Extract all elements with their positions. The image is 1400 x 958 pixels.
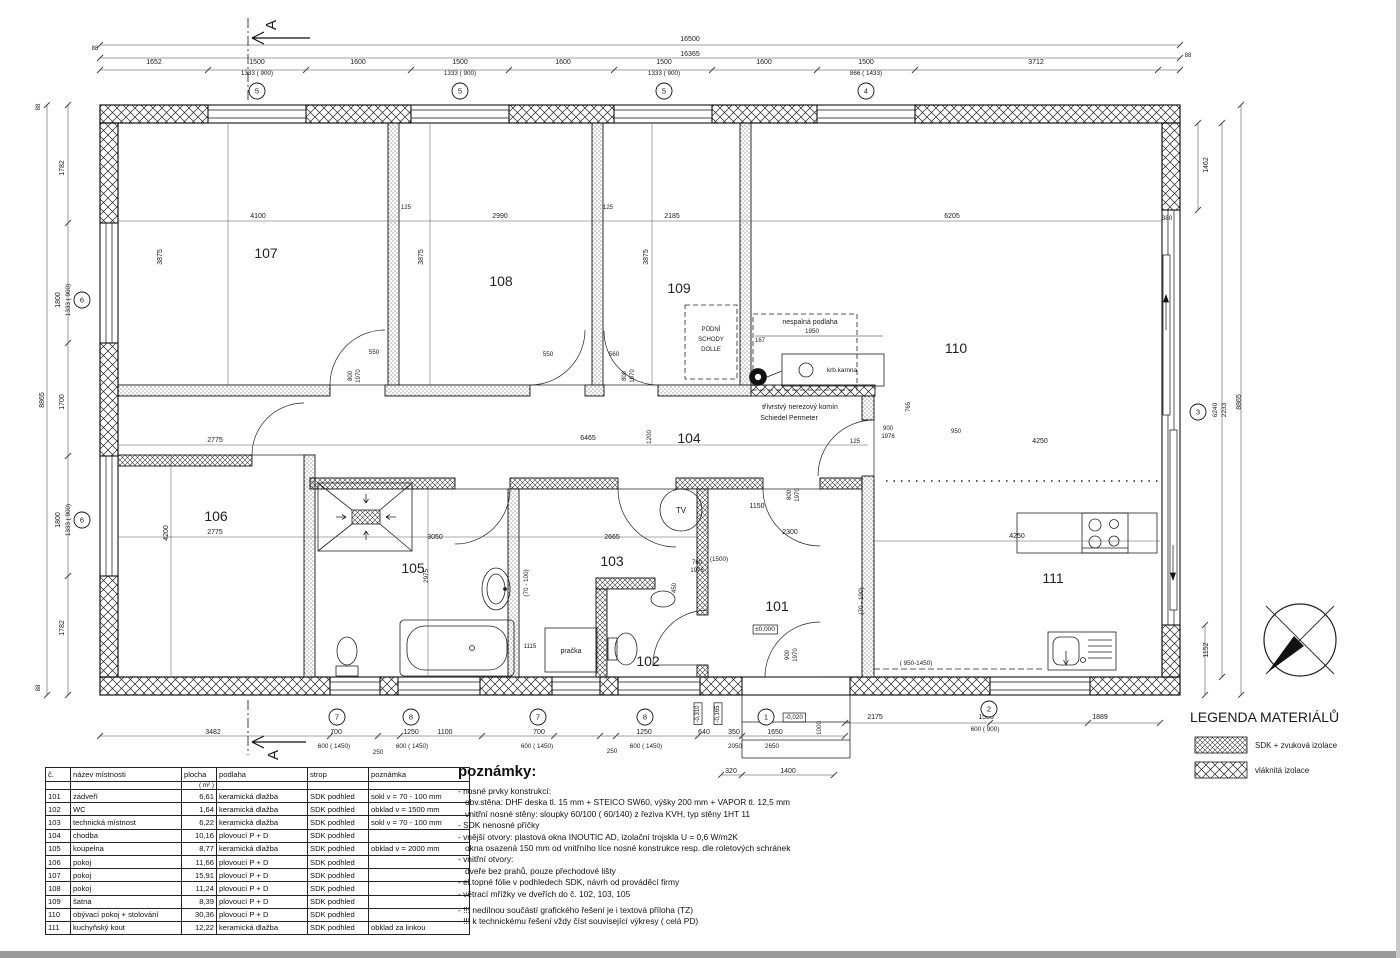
fireplace-stove <box>767 354 884 386</box>
dim-label: 1782 <box>59 160 66 176</box>
table-cell: 111 <box>46 921 71 934</box>
dim-label: 4250 <box>1032 438 1048 445</box>
room-label-109: 109 <box>667 280 691 296</box>
legend-swatch-sdk <box>1195 737 1247 753</box>
position-bubbles: 5554663787812 <box>74 83 1206 725</box>
dim-label: 2300 <box>782 529 798 536</box>
dim-label: -0,165 <box>715 705 721 723</box>
dim-label: (70 - 100) <box>523 569 530 596</box>
position-bubble-number: 6 <box>80 516 84 525</box>
dim-label: DOLLE <box>701 347 721 353</box>
dim-label: 450 <box>672 582 678 593</box>
note-line: obv.stěna: DHF deska tl. 15 mm + STEICO … <box>458 797 928 808</box>
table-row: 108pokoj11,24plovoucí P + DSDK podhled <box>46 882 470 895</box>
dim-label: 88 <box>92 46 99 52</box>
dim-label: 1600 <box>756 59 772 66</box>
dim-label: 2650 <box>765 743 780 750</box>
dim-label: 800 <box>348 370 354 381</box>
dim-label: 1700 <box>59 394 66 410</box>
table-unit-cell: ( m² ) <box>182 782 217 790</box>
notes-heading: poznámky: <box>458 763 928 780</box>
room-label-105: 105 <box>401 560 425 576</box>
dim-label: 1970 <box>630 369 636 383</box>
dim-label: 125 <box>850 439 861 445</box>
position-bubble-number: 2 <box>987 705 991 714</box>
dim-label: 4250 <box>1009 533 1025 540</box>
table-cell: 30,36 <box>182 908 217 921</box>
position-bubble-number: 8 <box>643 713 647 722</box>
dim-label: 1800 <box>55 292 62 308</box>
note-line: - nosné prvky konstrukcí: <box>458 786 928 797</box>
interior-walls <box>118 123 875 677</box>
dim-label: 125 <box>401 205 412 211</box>
legend: LEGENDA MATERIÁLŮ SDK + zvuková izolace … <box>1190 708 1339 778</box>
washbasin <box>482 568 510 610</box>
dim-label: 600 ( 1450) <box>630 743 662 750</box>
kitchen-sink <box>1048 632 1116 670</box>
dim-label: 3482 <box>205 729 221 736</box>
position-bubble-number: 7 <box>335 713 339 722</box>
dim-label: krb.kamna <box>827 367 858 374</box>
table-unit-cell <box>71 782 182 790</box>
svg-text:A: A <box>265 750 282 760</box>
dim-label: 1333 ( 900) <box>241 70 273 77</box>
dim-label: 1200 <box>646 430 653 445</box>
dim-label: 900 <box>785 649 791 660</box>
table-row: 105koupelna8,77keramická dlažbaSDK podhl… <box>46 842 470 855</box>
dim-label: 765 <box>906 401 912 412</box>
toilet-105 <box>336 637 358 676</box>
position-bubble-number: 7 <box>536 713 540 722</box>
dim-label: 1115 <box>524 644 537 650</box>
dim-label: SCHODY <box>698 337 724 343</box>
dim-label: 1650 <box>767 729 783 736</box>
table-header: název místnosti <box>71 768 182 782</box>
table-cell: 101 <box>46 790 71 803</box>
table-cell: pokoj <box>71 869 182 882</box>
dim-label: 3875 <box>643 249 650 265</box>
windows <box>106 110 1177 690</box>
table-cell <box>369 869 470 882</box>
position-bubble-number: 6 <box>80 296 84 305</box>
table-row: 106pokoj11,66plovoucí P + DSDK podhled <box>46 855 470 868</box>
note-line: dveře bez prahů, pouze přechodové lišty <box>458 866 928 877</box>
dim-label: 2175 <box>867 714 883 721</box>
table-row: 102WC1,64keramická dlažbaSDK podhledobkl… <box>46 803 470 816</box>
bathtub <box>400 620 514 676</box>
table-cell: SDK podhled <box>308 895 369 908</box>
table-cell: SDK podhled <box>308 921 369 934</box>
table-cell: 103 <box>46 816 71 829</box>
legend-label-insulation: vláknitá izolace <box>1255 766 1310 775</box>
table-cell: chodba <box>71 829 182 842</box>
table-cell: SDK podhled <box>308 908 369 921</box>
table-cell: SDK podhled <box>308 829 369 842</box>
dim-label: 1600 <box>555 59 571 66</box>
dim-label: 16500 <box>680 36 700 43</box>
dim-label: 6240 <box>1212 402 1219 417</box>
chimney <box>750 369 767 386</box>
table-header: plocha <box>182 768 217 782</box>
table-header: podlaha <box>217 768 308 782</box>
table-cell: pokoj <box>71 882 182 895</box>
table-header: poznámka <box>369 768 470 782</box>
position-bubble-number: 1 <box>764 713 768 722</box>
dim-label: 1950 <box>805 328 820 335</box>
table-cell <box>369 908 470 921</box>
dim-label: (1500) <box>710 556 728 563</box>
dim-label: 8865 <box>39 392 46 408</box>
table-cell: plovoucí P + D <box>217 869 308 882</box>
annotation-label: nespalná podlaha <box>782 319 837 326</box>
dim-label: 250 <box>373 749 384 756</box>
note-line: - SDK nenosné příčky <box>458 820 928 831</box>
table-unit-cell <box>369 782 470 790</box>
dim-label: 1970 <box>356 369 362 383</box>
shower <box>318 483 412 551</box>
room-label-103: 103 <box>600 553 624 569</box>
dim-label: ±0,000 <box>755 626 775 633</box>
dim-label: 1333 ( 900) <box>444 70 476 77</box>
note-line: - vnitřní otvory: <box>458 854 928 865</box>
table-cell: 104 <box>46 829 71 842</box>
dim-label: 1970 <box>795 488 801 502</box>
dim-label: 900 <box>883 426 894 432</box>
dim-label: pračka <box>560 648 581 655</box>
dim-label: 3712 <box>1028 59 1044 66</box>
dim-label: 380 <box>1162 215 1173 222</box>
table-cell: 15,91 <box>182 869 217 882</box>
dim-label: 167 <box>755 338 766 344</box>
dim-label: 1333 ( 900) <box>65 284 72 316</box>
table-cell: SDK podhled <box>308 842 369 855</box>
table-header: strop <box>308 768 369 782</box>
dim-label: 6205 <box>944 213 960 220</box>
table-header: č. <box>46 768 71 782</box>
table-cell: obklad v = 2000 mm <box>369 842 470 855</box>
table-cell <box>369 855 470 868</box>
dim-label: 866 ( 1433) <box>850 70 882 77</box>
table-row: 107pokoj15,91plovoucí P + DSDK podhled <box>46 869 470 882</box>
table-cell <box>369 895 470 908</box>
dim-label: 1500 <box>858 59 874 66</box>
dim-label: 550 <box>543 351 554 358</box>
table-cell: 102 <box>46 803 71 816</box>
table-cell <box>369 882 470 895</box>
legend-swatch-insulation <box>1195 762 1247 778</box>
table-cell <box>369 829 470 842</box>
table-cell: 8,39 <box>182 895 217 908</box>
dim-label: 88 <box>36 103 42 110</box>
dim-label: 1462 <box>1203 157 1210 173</box>
dim-label: 550 <box>369 349 380 356</box>
dim-label: 800 <box>622 370 628 381</box>
dim-label: 1500 <box>249 59 265 66</box>
room-label-102: 102 <box>636 653 660 669</box>
dim-label: -0,310 <box>695 705 701 723</box>
window-edge-right <box>1396 0 1400 958</box>
dim-label: 950 <box>951 429 962 435</box>
dim-label: 1600 <box>350 59 366 66</box>
notes-block: poznámky: - nosné prvky konstrukcí:obv.s… <box>458 763 928 928</box>
kitchen-counter <box>1017 513 1157 553</box>
table-cell: obklad v = 1500 mm <box>369 803 470 816</box>
table-cell: plovoucí P + D <box>217 882 308 895</box>
dim-label: 640 <box>698 729 710 736</box>
floor-plan-sheet: A A LEGENDA MATERIÁLŮ SDK + zvuková izol… <box>0 0 1400 958</box>
dim-label: 2775 <box>207 437 223 444</box>
legend-label-sdk: SDK + zvuková izolace <box>1255 741 1338 750</box>
dim-label: 2775 <box>207 529 223 536</box>
dim-label: PŮDNÍ <box>702 326 721 333</box>
dim-label: 1333 ( 900) <box>648 70 680 77</box>
dim-label: 1976 <box>690 568 704 574</box>
table-cell: 107 <box>46 869 71 882</box>
room-label-110: 110 <box>945 340 968 356</box>
table-cell: 10,16 <box>182 829 217 842</box>
dim-label: 88 <box>36 684 42 691</box>
table-cell: keramická dlažba <box>217 921 308 934</box>
dim-label: 2665 <box>604 534 620 541</box>
dim-label: 2233 <box>1221 402 1228 417</box>
table-cell: 108 <box>46 882 71 895</box>
table-cell: 11,66 <box>182 855 217 868</box>
table-cell: keramická dlažba <box>217 803 308 816</box>
table-row: 101zádveří6,61keramická dlažbaSDK podhle… <box>46 790 470 803</box>
table-unit-cell <box>217 782 308 790</box>
dim-label: 3875 <box>418 249 425 265</box>
dim-label: 350 <box>728 729 740 736</box>
table-cell: keramická dlažba <box>217 816 308 829</box>
table-cell: 1,64 <box>182 803 217 816</box>
window-edge-bottom <box>0 951 1400 958</box>
dim-label: 6465 <box>580 435 596 442</box>
dim-label: 700 <box>533 729 545 736</box>
dim-label: 800 <box>787 489 793 500</box>
table-cell: 109 <box>46 895 71 908</box>
dim-label: 1782 <box>59 620 66 636</box>
dim-label: 1250 <box>403 729 419 736</box>
table-cell: sokl v = 70 - 100 mm <box>369 816 470 829</box>
dim-label: 1152 <box>1203 642 1210 657</box>
fixtures <box>318 305 1158 676</box>
room-label-111: 111 <box>1042 570 1063 586</box>
table-cell: SDK podhled <box>308 855 369 868</box>
note-line: - !!! k technickému řešení vždy číst sou… <box>458 916 928 927</box>
room-label-106: 106 <box>204 508 228 524</box>
note-line: - !!! nedílnou součástí grafického řešen… <box>458 905 928 916</box>
table-cell: koupelna <box>71 842 182 855</box>
toilet-102 <box>608 633 637 665</box>
dim-label: 2185 <box>664 213 680 220</box>
dim-label: TV <box>676 506 687 515</box>
room-label-101: 101 <box>765 598 789 614</box>
table-cell: kuchyňský kout <box>71 921 182 934</box>
position-bubble-number: 5 <box>662 87 666 96</box>
outer-walls <box>100 105 1180 695</box>
position-bubble-number: 3 <box>1196 408 1200 417</box>
dim-label: 560 <box>609 351 620 358</box>
table-cell: plovoucí P + D <box>217 855 308 868</box>
dim-label: 1500 <box>452 59 468 66</box>
svg-text:A: A <box>263 20 280 30</box>
dim-label: 16365 <box>680 51 700 58</box>
dim-label: 1100 <box>437 729 452 736</box>
room-schedule-table: č.název místnostiplochapodlahastroppozná… <box>45 767 470 935</box>
dim-label: 1500 <box>656 59 672 66</box>
dim-label: 88 <box>1185 53 1192 59</box>
dim-label: 600 ( 1450) <box>521 743 553 750</box>
table-cell: zádveří <box>71 790 182 803</box>
table-cell: SDK podhled <box>308 882 369 895</box>
dim-label: 1652 <box>146 59 162 66</box>
table-cell: pokoj <box>71 855 182 868</box>
dim-label: ( 950-1450) <box>900 660 933 667</box>
table-cell: obývací pokoj + stolování <box>71 908 182 921</box>
table-unit-cell <box>46 782 71 790</box>
note-line: vnitřní nosné stěny: sloupky 60/100 ( 60… <box>458 809 928 820</box>
dim-label: 3875 <box>157 249 164 265</box>
dim-label: 1000 <box>816 721 823 736</box>
dim-label: 1333 ( 900) <box>65 504 72 536</box>
table-row: 103technická místnost6,22keramická dlažb… <box>46 816 470 829</box>
room-label-108: 108 <box>489 273 513 289</box>
annotation-label: třívrstvý nerezový komín <box>762 404 838 411</box>
table-cell: SDK podhled <box>308 869 369 882</box>
table-cell: SDK podhled <box>308 816 369 829</box>
dim-label: 1250 <box>636 729 652 736</box>
table-cell: SDK podhled <box>308 803 369 816</box>
dim-label: (70 - 100) <box>858 587 865 614</box>
dim-label: 1970 <box>793 648 799 662</box>
position-bubble-number: 5 <box>458 87 462 96</box>
dim-label: 700 <box>330 729 342 736</box>
dim-label: 2050 <box>728 743 743 750</box>
note-line: - el.topné fólie v podhledech SDK, návrh… <box>458 877 928 888</box>
dim-label: 2990 <box>492 213 508 220</box>
dim-label: 1150 <box>749 503 764 510</box>
stove <box>1082 513 1128 553</box>
dim-label: 4100 <box>250 213 266 220</box>
room-label-104: 104 <box>677 430 701 446</box>
inner-dim-lines <box>118 123 1162 677</box>
table-cell: plovoucí P + D <box>217 829 308 842</box>
table-cell: 105 <box>46 842 71 855</box>
door-arcs <box>252 330 874 677</box>
dim-label: 600 ( 1450) <box>396 743 428 750</box>
legend-title: LEGENDA MATERIÁLŮ <box>1190 708 1339 725</box>
dim-label: 8865 <box>1236 394 1243 410</box>
dim-label: 3050 <box>427 534 443 541</box>
table-row: 110obývací pokoj + stolování30,36plovouc… <box>46 908 470 921</box>
table-cell: plovoucí P + D <box>217 908 308 921</box>
table-cell: sokl v = 70 - 100 mm <box>369 790 470 803</box>
table-cell: technická místnost <box>71 816 182 829</box>
dim-label: 760 <box>692 560 703 566</box>
dim-label: 1976 <box>881 434 895 440</box>
position-bubble-number: 4 <box>864 87 868 96</box>
dim-label: 1889 <box>1092 714 1108 721</box>
north-arrow <box>1264 604 1336 676</box>
position-bubble-number: 5 <box>255 87 259 96</box>
dim-label: -0,020 <box>785 714 803 721</box>
table-cell: 11,24 <box>182 882 217 895</box>
room-label-107: 107 <box>254 245 278 261</box>
table-row: 104chodba10,16plovoucí P + DSDK podhled <box>46 829 470 842</box>
table-cell: obklad za linkou <box>369 921 470 934</box>
dim-label: 1800 <box>55 512 62 528</box>
table-cell: 106 <box>46 855 71 868</box>
dim-label: 4200 <box>163 525 170 541</box>
position-bubble-number: 8 <box>409 713 413 722</box>
table-cell: keramická dlažba <box>217 790 308 803</box>
note-line: - vnější otvory: plastová okna INOUTIC A… <box>458 832 928 843</box>
dim-label: 125 <box>603 205 614 211</box>
table-cell: 6,61 <box>182 790 217 803</box>
table-cell: 8,77 <box>182 842 217 855</box>
table-cell: šatna <box>71 895 182 908</box>
table-cell: 6,22 <box>182 816 217 829</box>
dim-label: 250 <box>607 748 618 755</box>
table-cell: 12,22 <box>182 921 217 934</box>
note-line: - větrací mřížky ve dveřích do č. 102, 1… <box>458 889 928 900</box>
room-number-labels: 101102103104105106107108109110111 <box>204 245 1064 669</box>
table-row: 111kuchyňský kout12,22keramická dlažbaSD… <box>46 921 470 934</box>
annotation-label: Schiedel Permeter <box>760 415 818 422</box>
table-cell: WC <box>71 803 182 816</box>
dim-label: 600 ( 1450) <box>318 743 350 750</box>
table-cell: plovoucí P + D <box>217 895 308 908</box>
dim-label: 600 ( 900) <box>971 726 1000 733</box>
table-cell: keramická dlažba <box>217 842 308 855</box>
table-row: 109šatna8,39plovoucí P + DSDK podhled <box>46 895 470 908</box>
table-cell: 110 <box>46 908 71 921</box>
table-unit-cell <box>308 782 369 790</box>
table-cell: SDK podhled <box>308 790 369 803</box>
note-line: okna osazená 150 mm od vnitřního líce no… <box>458 843 928 854</box>
entry-porch <box>742 695 850 758</box>
